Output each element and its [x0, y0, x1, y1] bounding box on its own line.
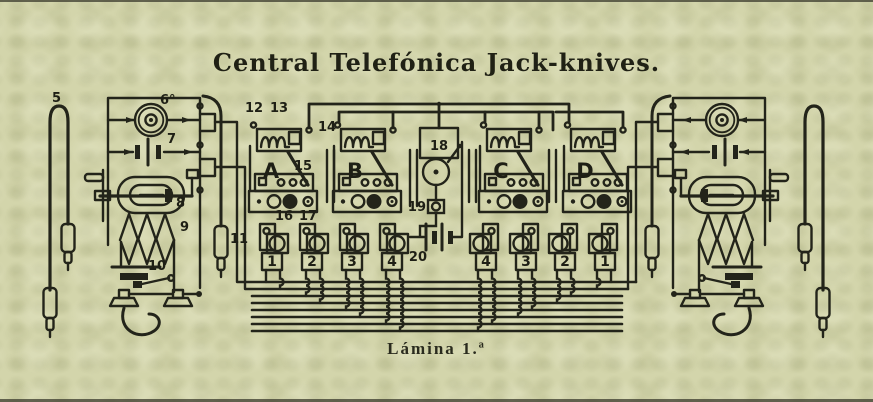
part-label-19: 19 — [408, 200, 426, 215]
plug-right-4-number: 4 — [481, 254, 491, 270]
telephone-exchange-schematic: A B C D — [0, 0, 873, 402]
part-label-13: 13 — [270, 101, 288, 116]
part-label-14: 14 — [318, 120, 336, 135]
part-label-15: 15 — [294, 159, 312, 174]
subscriber-set-left — [44, 96, 246, 337]
plug-right-2-number: 2 — [560, 254, 570, 270]
part-label-9: 9 — [180, 220, 189, 235]
jack-d: D — [563, 122, 631, 212]
scanned-plate: Central Telefónica Jack-knives. Lámina 1… — [0, 0, 873, 402]
plug-bus-cords — [266, 270, 611, 331]
part-label-10: 10 — [148, 259, 166, 274]
plug-row-right: 4 3 2 1 — [470, 224, 617, 270]
plug-right-1-number: 1 — [600, 254, 610, 270]
part-label-20: 20 — [409, 250, 427, 265]
subscriber-set-right — [628, 96, 830, 337]
part-label-18: 18 — [430, 139, 448, 154]
bus-lines — [238, 282, 636, 331]
jack-d-letter: D — [576, 159, 593, 183]
part-label-7: 7 — [167, 132, 176, 147]
jack-c-letter: C — [493, 159, 508, 183]
jack-b-letter: B — [347, 159, 363, 183]
plug-right-3-number: 3 — [521, 254, 531, 270]
jack-c: C — [479, 122, 547, 212]
part-label-6: 6° — [160, 93, 176, 108]
plug-left-4-number: 4 — [387, 254, 397, 270]
plug-left-1-number: 1 — [267, 254, 277, 270]
part-label-5: 5 — [52, 91, 61, 106]
part-label-12: 12 — [245, 101, 263, 116]
part-label-17: 17 — [299, 209, 317, 224]
plug-left-3-number: 3 — [347, 254, 357, 270]
part-label-16: 16 — [275, 209, 293, 224]
jack-a-letter: A — [263, 159, 280, 183]
part-label-11: 11 — [230, 232, 248, 247]
plug-left-2-number: 2 — [307, 254, 317, 270]
jack-b: B — [333, 122, 401, 212]
plug-row-left: 1 2 3 4 — [260, 224, 408, 270]
part-label-8: 8 — [176, 196, 185, 211]
